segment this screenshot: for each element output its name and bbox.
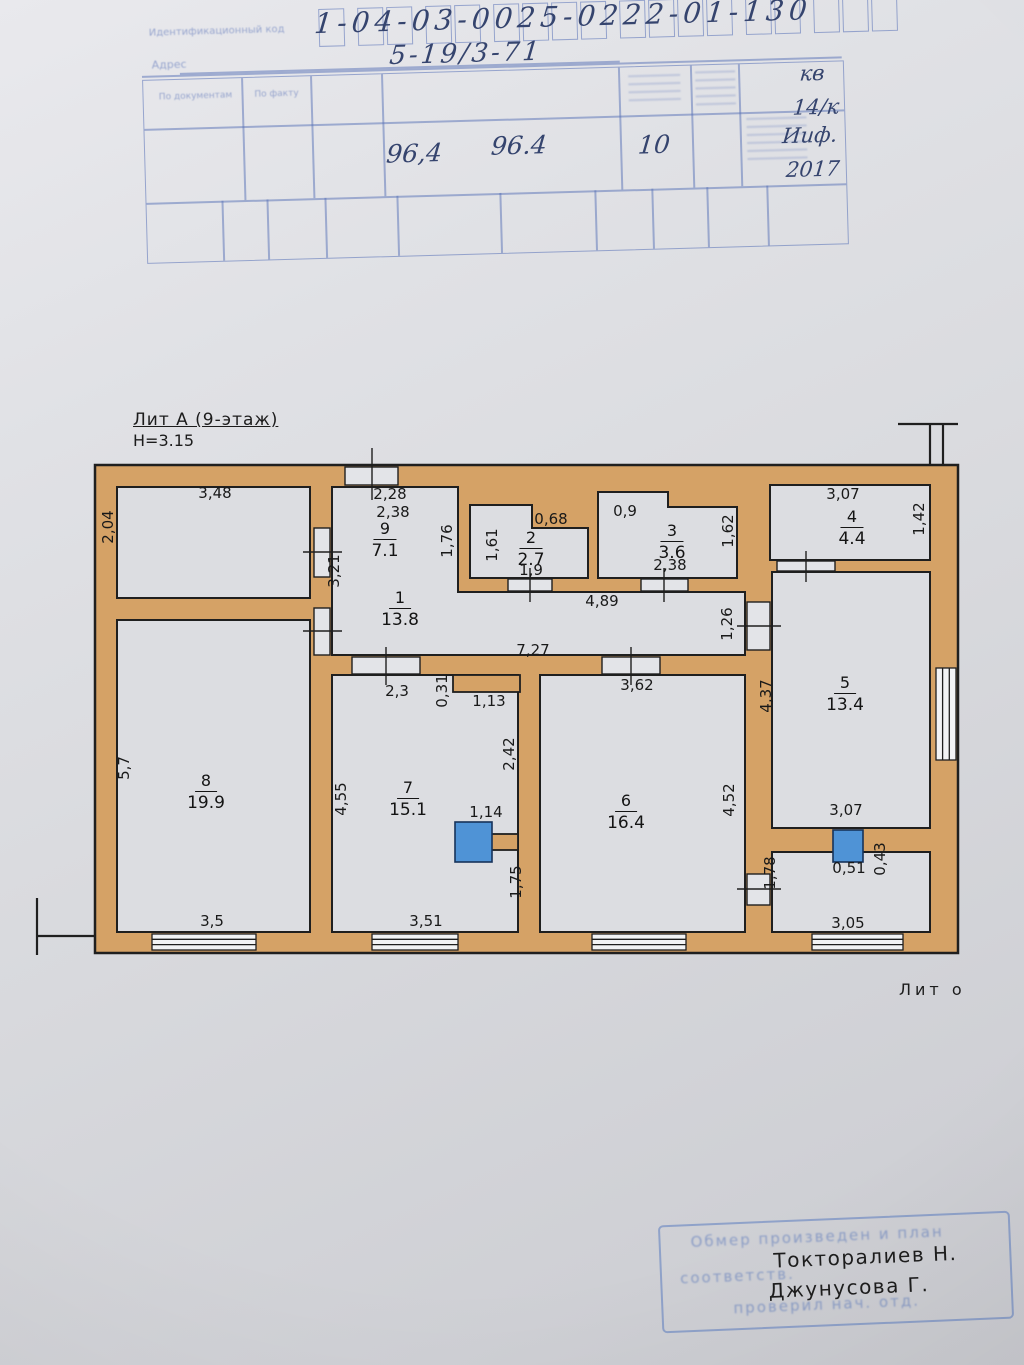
room-label-4: 44.4 — [838, 507, 865, 549]
dim-label: 1,61 — [483, 528, 501, 561]
wall-notch — [453, 675, 520, 692]
dim-label: 3,5 — [200, 912, 224, 930]
liter-label: Лит о — [899, 980, 966, 999]
dim-label: 0,31 — [433, 674, 451, 707]
dim-label: 2,42 — [500, 737, 518, 770]
wall-stub — [490, 834, 518, 850]
dim-label: 1,26 — [718, 607, 736, 640]
floor-plan-svg — [0, 0, 1024, 1365]
scanned-tech-passport-page: Идентификационный код 1-04-03-0025-0222-… — [0, 0, 1024, 1365]
dim-label: 3,51 — [409, 912, 442, 930]
dim-label: 1,9 — [519, 561, 543, 579]
dim-label: 4,52 — [720, 783, 738, 816]
dim-label: 1,13 — [472, 692, 505, 710]
shaft-room7 — [455, 822, 492, 862]
room-9 — [117, 487, 310, 598]
room-label-8: 819.9 — [187, 771, 225, 813]
footer-stamp: Обмер произведен и план соответств. пров… — [658, 1211, 1014, 1334]
dim-label: 1,62 — [719, 514, 737, 547]
dim-label: 0,9 — [613, 502, 637, 520]
shaft-loggia — [833, 830, 863, 862]
dim-label: 1,42 — [910, 502, 928, 535]
dim-label: 3,21 — [325, 554, 343, 587]
dim-label: 5,7 — [115, 756, 133, 780]
dim-label: 2,04 — [99, 510, 117, 543]
plan-title: Лит А (9-этаж) — [133, 410, 278, 430]
dim-label: 0,51 — [832, 859, 865, 877]
dim-label: 2,28 — [373, 485, 406, 503]
room-label-5: 513.4 — [826, 673, 864, 715]
dim-label: 7,27 — [516, 641, 549, 659]
room-label-9: 97.1 — [371, 519, 398, 561]
dim-label: 3,62 — [620, 676, 653, 694]
dim-label: 2,3 — [385, 682, 409, 700]
dim-label: 4,37 — [757, 679, 775, 712]
dim-label: 3,07 — [829, 801, 862, 819]
dim-label: 1,78 — [761, 856, 779, 889]
dim-label: 0,68 — [534, 510, 567, 528]
dim-label: 2,38 — [653, 556, 686, 574]
dim-label: 2,38 — [376, 503, 409, 521]
dim-label: 3,48 — [198, 484, 231, 502]
room-label-1: 113.8 — [381, 588, 419, 630]
dim-label: 1,75 — [507, 865, 525, 898]
dim-label: 4,55 — [332, 782, 350, 815]
dim-label: 0,43 — [871, 842, 889, 875]
dim-label: 1,14 — [469, 803, 502, 821]
room-label-6: 616.4 — [607, 791, 645, 833]
dim-label: 4,89 — [585, 592, 618, 610]
dim-label: 1,76 — [438, 524, 456, 557]
room-label-7: 715.1 — [389, 778, 427, 820]
dim-label: 3,07 — [826, 485, 859, 503]
plan-height-label: Н=3.15 — [133, 431, 194, 450]
dim-label: 3,05 — [831, 914, 864, 932]
